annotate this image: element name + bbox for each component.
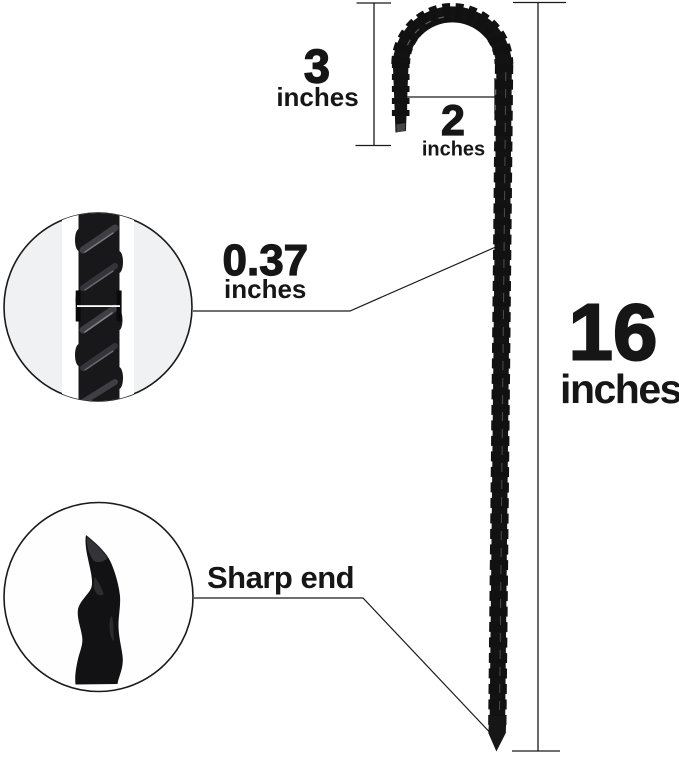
svg-text:inches: inches [276, 82, 358, 112]
svg-text:inches: inches [224, 274, 306, 304]
svg-text:16: 16 [569, 288, 658, 377]
svg-text:Sharp end: Sharp end [207, 560, 354, 595]
svg-text:inches: inches [560, 366, 679, 412]
svg-text:inches: inches [422, 139, 485, 161]
